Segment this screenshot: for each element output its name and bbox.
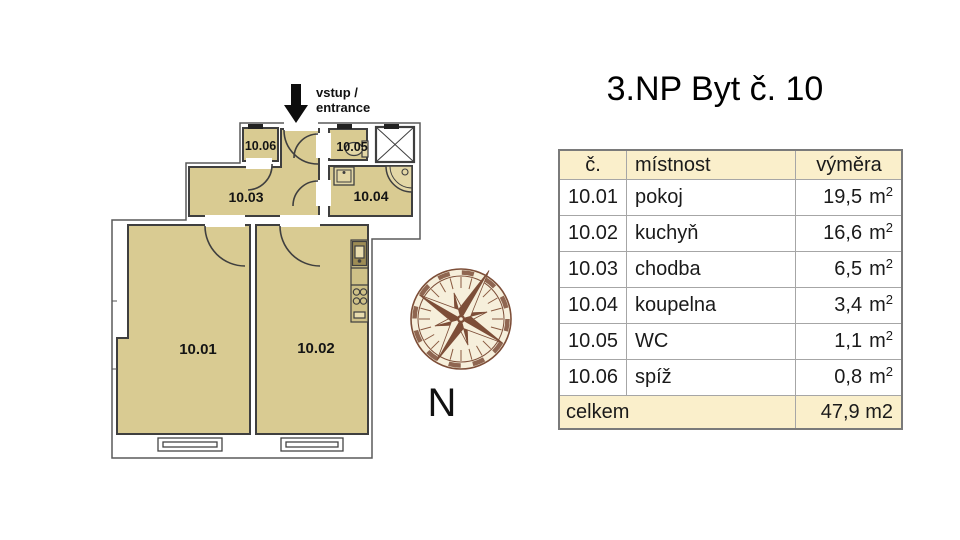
entrance-label-line2: entrance [316,100,370,115]
cell-area: 19,5m2 [796,180,903,216]
room-label-10.03: 10.03 [228,189,263,205]
wall-vent-icon [248,124,263,129]
cell-area: 16,6m2 [796,216,903,252]
door-gap-entrance [284,119,318,131]
col-header-number: č. [559,150,627,180]
room-label-10.04: 10.04 [353,188,388,204]
bathroom-sink [334,167,354,185]
col-header-area: výměra [796,150,903,180]
table-row: 10.02 kuchyň 16,6m2 [559,216,902,252]
cell-area: 1,1m2 [796,324,903,360]
door-gap-10.05 [316,133,331,158]
cell-area: 6,5m2 [796,252,903,288]
table-row: 10.04 koupelna 3,4m2 [559,288,902,324]
room-label-10.01: 10.01 [179,341,217,358]
floor-plan: vstup / entrance 10.06 10.05 10.03 10.04… [90,55,440,475]
cell-room: pokoj [627,180,796,216]
compass-rose-icon [402,260,520,378]
table-row: 10.01 pokoj 19,5m2 [559,180,902,216]
area-table: č. místnost výměra 10.01 pokoj 19,5m2 10… [558,149,903,430]
cell-number: 10.01 [559,180,627,216]
elevator-shaft [376,127,414,162]
cell-number: 10.05 [559,324,627,360]
cell-room: WC [627,324,796,360]
cell-total-area: 47,9 m2 [796,396,903,430]
floorplan-page: vstup / entrance 10.06 10.05 10.03 10.04… [0,0,960,540]
wall-vent-icon [337,124,352,129]
table-footer-row: celkem 47,9 m2 [559,396,902,430]
cell-room: koupelna [627,288,796,324]
entrance-label-line1: vstup / [316,85,358,100]
door-gap-10.06 [246,158,272,169]
north-label: N [420,381,464,426]
door-gap-10.01 [205,215,245,227]
cell-room: chodba [627,252,796,288]
cell-total-label: celkem [559,396,796,430]
cell-room: kuchyň [627,216,796,252]
entrance-arrow-icon [284,84,308,123]
cell-room: spíž [627,360,796,396]
cell-area: 0,8m2 [796,360,903,396]
room-10.01 [117,225,250,434]
page-title: 3.NP Byt č. 10 [555,70,875,109]
room-label-10.05: 10.05 [336,140,367,154]
col-header-room: místnost [627,150,796,180]
room-label-10.06: 10.06 [245,139,276,153]
cell-number: 10.04 [559,288,627,324]
door-gap-10.02 [280,215,320,227]
cell-number: 10.03 [559,252,627,288]
cell-area: 3,4m2 [796,288,903,324]
kitchen-unit [351,240,368,322]
window [281,438,343,451]
room-label-10.02: 10.02 [297,340,335,357]
table-row: 10.03 chodba 6,5m2 [559,252,902,288]
table-header-row: č. místnost výměra [559,150,902,180]
table-row: 10.06 spíž 0,8m2 [559,360,902,396]
cell-number: 10.06 [559,360,627,396]
wall-vent-icon [384,124,399,129]
table-row: 10.05 WC 1,1m2 [559,324,902,360]
door-gap-10.04 [316,180,331,206]
cell-number: 10.02 [559,216,627,252]
window [158,438,222,451]
